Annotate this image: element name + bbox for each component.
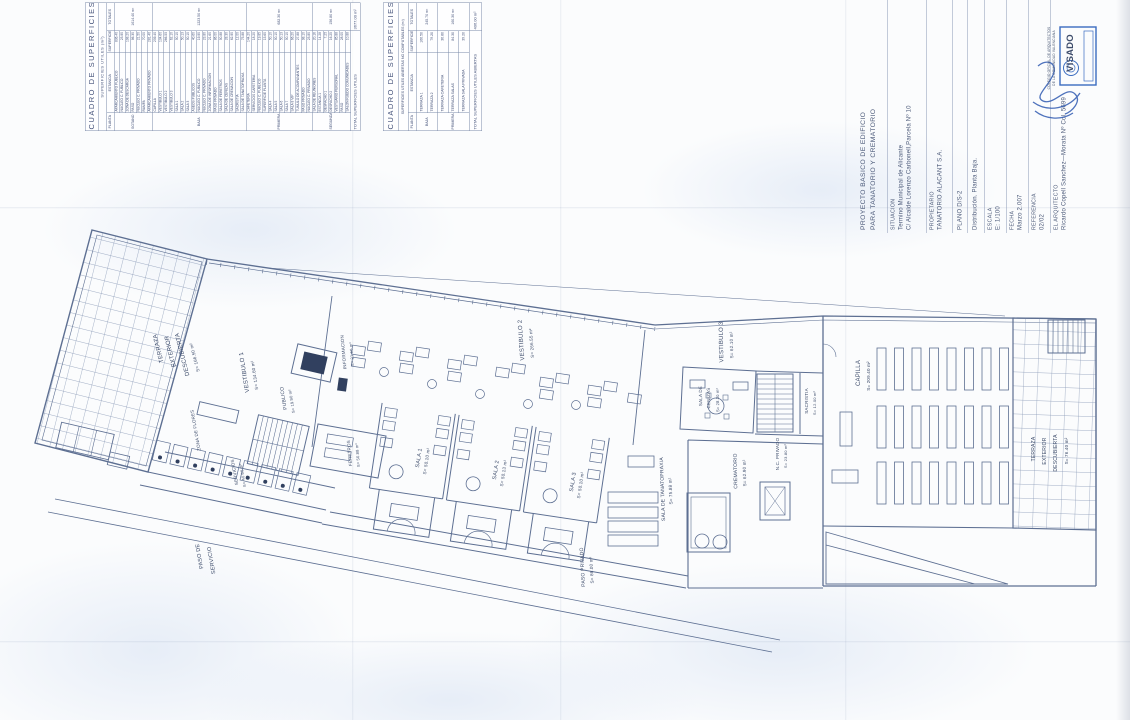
sala-unit: SALA 1S= 50.10 m² [363, 403, 455, 539]
facade-tick [346, 282, 347, 286]
chapel-pew [965, 462, 974, 504]
facade-wall [207, 259, 655, 325]
label-cenizas: SALA DE [698, 386, 703, 406]
facade-tick [248, 267, 249, 271]
chapel-pew [965, 406, 974, 448]
sala-sofa [515, 427, 528, 438]
facade-tick [528, 308, 529, 312]
sacristia-stair [757, 374, 793, 432]
chapel-pew [982, 348, 991, 390]
lounge-seat [399, 363, 413, 374]
chapel-pew [930, 462, 939, 504]
sala-private-room [373, 489, 434, 537]
chapel-pew [912, 406, 921, 448]
label-crematorio-area: S= 62.90 m² [742, 459, 747, 486]
facade-tick [276, 271, 277, 275]
coffee-table [476, 390, 485, 399]
cenizas-seat [723, 395, 728, 400]
lounge-seat [511, 363, 525, 374]
facade-tick [388, 288, 389, 292]
stamp-visado-text: VISADO [1065, 34, 1076, 72]
sala-sofa [384, 407, 397, 418]
chapel-pew [965, 348, 974, 390]
private-elevator [760, 482, 790, 520]
facade-tick [290, 273, 291, 277]
lounge-seat [539, 389, 553, 400]
stamp-college-line2: DE LA COMUNIDAD VALENCIANA [1052, 30, 1056, 86]
capilla-south-wall [823, 526, 1013, 528]
label-sacristia-area: S= 12.00 m² [812, 390, 817, 415]
label-paso-servicio: SERVICIO [207, 545, 218, 574]
lounge-seat [399, 351, 413, 362]
sala-sofa [534, 461, 547, 472]
chapel-pew [930, 348, 939, 390]
label-vestibulo2: VESTIBULO 2 [518, 319, 527, 361]
label-cenizas: CENIZAS [706, 388, 711, 409]
sala-private-room [450, 501, 511, 549]
capilla-door-arc [823, 344, 836, 357]
lounge-seat [587, 397, 601, 408]
chapel-pew [877, 406, 886, 448]
facade-tick [598, 319, 599, 323]
lounge-seat [367, 341, 381, 352]
tanatopraxia-slabs [608, 456, 658, 546]
sala-sofa [590, 452, 603, 463]
facade-tick [626, 323, 627, 327]
label-paso-servicio: PASO DE [195, 543, 205, 569]
label-sacristia: SACRISTIA [804, 388, 809, 414]
lounge-seat [495, 367, 509, 378]
stamp-college-line1: COLEGIO OFICIAL DE ARQUITECTOS [1047, 27, 1051, 90]
ramp-triangle [826, 532, 1008, 584]
facade-tick [458, 298, 459, 302]
cenizas-seat [705, 413, 710, 418]
floor-plan-drawing: SALA 1S= 50.10 m²SALA 2S= 50.13 m²SALA 3… [0, 0, 1130, 720]
chapel-pew [1000, 348, 1009, 390]
facade-tick [332, 280, 333, 284]
sala-sofa [536, 444, 549, 455]
label-terraza-der: EXTERIOR [1042, 437, 1048, 464]
chapel-pew [947, 348, 956, 390]
capilla-table [832, 470, 858, 483]
chapel-pew [895, 406, 904, 448]
sala-sofa [587, 469, 600, 480]
sala-sofa [457, 449, 470, 460]
coffee-table [380, 368, 389, 377]
generated-plan-details: SALA 1S= 50.10 m²SALA 2S= 50.13 m²SALA 3… [152, 261, 1008, 562]
sala-sofa [436, 428, 449, 439]
coffee-table [428, 380, 437, 389]
facade-tick [416, 292, 417, 296]
sala-sofa [433, 445, 446, 456]
facade-tick [556, 313, 557, 317]
facade-tick [500, 304, 501, 308]
sala-sofa [538, 431, 551, 442]
facade-tick [612, 321, 613, 325]
chapel-pew [895, 348, 904, 390]
facade-tick [444, 296, 445, 300]
chapel-pew [947, 406, 956, 448]
sala-table [388, 464, 404, 480]
vestibulo3-wall [633, 330, 645, 445]
label-terraza-izq-area: S= 166.50 m² [188, 342, 200, 372]
label-vestibulo1-area: S= 134.60 m² [250, 360, 260, 390]
facade-tick [430, 294, 431, 298]
scanned-floor-plan-sheet: CUADRO DE SUPERFICIESSUPERFICIES UTILES … [0, 0, 1130, 720]
label-terraza-der-area: S= 76.40 m² [1064, 437, 1069, 464]
cenizas-desk [733, 382, 748, 390]
label-capilla: CAPILLA [856, 360, 862, 386]
label-informacion: INFORMACION [340, 335, 348, 370]
facade-tick [654, 327, 655, 331]
facade-tick [374, 286, 375, 290]
facade-tick [360, 284, 361, 288]
sala-sofa [510, 457, 523, 468]
label-servicios-area: S= 40.60 m² [238, 463, 247, 488]
chapel-pew [877, 348, 886, 390]
lounge-seat [587, 385, 601, 396]
cenizas-seat [724, 414, 729, 419]
catafalque [543, 527, 573, 544]
chapel-pew [947, 462, 956, 504]
label-paso-privado-area: S= 86.00 m² [588, 556, 594, 583]
sala-sofa [459, 432, 472, 443]
chapel-pew [912, 462, 921, 504]
chapel-pew [982, 406, 991, 448]
coffee-table [572, 401, 581, 410]
sala-sofa [592, 439, 605, 450]
facade-tick [472, 300, 473, 304]
visado-stamp: VISADO COLEGIO OFICIAL DE ARQUITECTOS DE… [1040, 0, 1130, 120]
label-zona-flores: ZONA DE FLORES [189, 409, 201, 451]
info-kiosk [337, 378, 348, 392]
label-crematorio: CREMATORIO [733, 453, 740, 489]
catafalque [466, 515, 496, 532]
lounge-seat [447, 371, 461, 382]
paso-servicio-lines [48, 499, 780, 652]
stamp-inner-box [1084, 31, 1093, 81]
coffee-table [524, 400, 533, 409]
sala-table [465, 476, 481, 492]
facade-tick [570, 315, 571, 319]
facade-tick [514, 306, 515, 310]
public-stair [247, 415, 309, 475]
lounge-seat [447, 359, 461, 370]
capilla-altar [840, 412, 852, 446]
lounge-seat [627, 393, 641, 404]
chapel-pew [895, 462, 904, 504]
label-nc-privado-area: S= 23.80 m² [783, 443, 788, 468]
roof-line [268, 268, 1005, 316]
sala-sofa [382, 420, 395, 431]
label-vestibulo1: VESTIBULO 1 [239, 351, 251, 393]
chapel-pew [930, 406, 939, 448]
lounge-seat [603, 381, 617, 392]
lounge-seat [539, 377, 553, 388]
facade-tick [318, 278, 319, 282]
sala-sofa [438, 415, 451, 426]
sala-table [542, 488, 558, 504]
facade-tick [402, 290, 403, 294]
sala-sofa [380, 437, 393, 448]
crematorio-walls [688, 440, 823, 588]
public-elevator [291, 344, 337, 382]
chapel-pew [877, 462, 886, 504]
chapel-pew [1000, 406, 1009, 448]
sala-unit: SALA 3S= 50.10 m² [517, 427, 609, 563]
facade-tick [262, 269, 263, 273]
facade-tick [542, 311, 543, 315]
facade-tick [304, 275, 305, 279]
sala-sofa [513, 440, 526, 451]
lounge-seat [415, 347, 429, 358]
label-nc-privado: N.C. PRIVADO [775, 437, 780, 470]
label-tanatopraxia-area: S= 75.88 m² [668, 477, 674, 504]
facade-tick [640, 325, 641, 329]
flores-planter [197, 402, 239, 424]
label-tanatopraxia: SALA DE TANATOPRAXIA [659, 457, 667, 522]
label-vestibulo3-area: S= 62.10 m² [729, 331, 734, 358]
facade-tick [486, 302, 487, 306]
facade-tick [220, 263, 221, 267]
lounge-seat [555, 373, 569, 384]
label-cenizas-area: S= 28.30 m² [715, 387, 720, 412]
label-feretros: FERETROS [346, 440, 353, 466]
chapel-pew [912, 348, 921, 390]
label-terraza-der: TERRAZA [1031, 436, 1037, 461]
label-feretros-area: S= 50.88 m² [354, 442, 361, 467]
lounge-seat [463, 355, 477, 366]
facade-tick [234, 265, 235, 269]
label-capilla-area: S= 209.40 m² [866, 361, 871, 391]
label-terraza-der: DESCUBIERTA [1053, 434, 1059, 472]
facade-tick [584, 317, 585, 321]
sala-unit: SALA 2S= 50.13 m² [440, 415, 532, 551]
terrace-right-outline [1013, 318, 1096, 530]
paso-privado-corridor [140, 472, 688, 588]
label-vestibulo2-area: S= 266.55 m² [528, 328, 535, 358]
label-paso-privado: PASO PRIVADO [579, 547, 587, 587]
sala-sofa [461, 419, 474, 430]
chapel-pew [1000, 462, 1009, 504]
crematorio-oven [687, 493, 730, 552]
facade-wall-inner [209, 263, 654, 329]
label-vestibulo3: VESTIBULO 3 [719, 321, 726, 362]
catafalque [389, 503, 419, 520]
chapel-pew [982, 462, 991, 504]
